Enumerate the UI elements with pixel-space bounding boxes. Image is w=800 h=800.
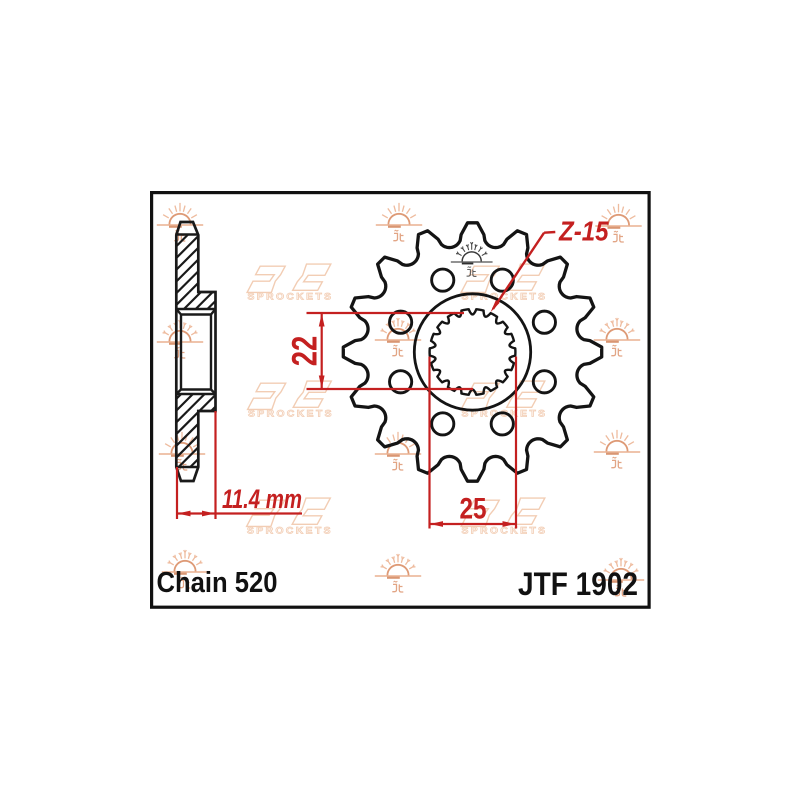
svg-text:SPROCKETS: SPROCKETS [462, 526, 548, 536]
svg-text:22: 22 [286, 336, 325, 367]
svg-text:JTF 1902: JTF 1902 [518, 566, 638, 602]
svg-text:Chain 520: Chain 520 [157, 567, 278, 599]
svg-text:Z-15: Z-15 [558, 216, 609, 247]
svg-text:SPROCKETS: SPROCKETS [247, 526, 333, 536]
svg-text:SPROCKETS: SPROCKETS [248, 292, 334, 302]
svg-text:25: 25 [460, 493, 487, 526]
svg-text:SPROCKETS: SPROCKETS [248, 409, 334, 419]
svg-text:11.4 mm: 11.4 mm [222, 484, 302, 514]
